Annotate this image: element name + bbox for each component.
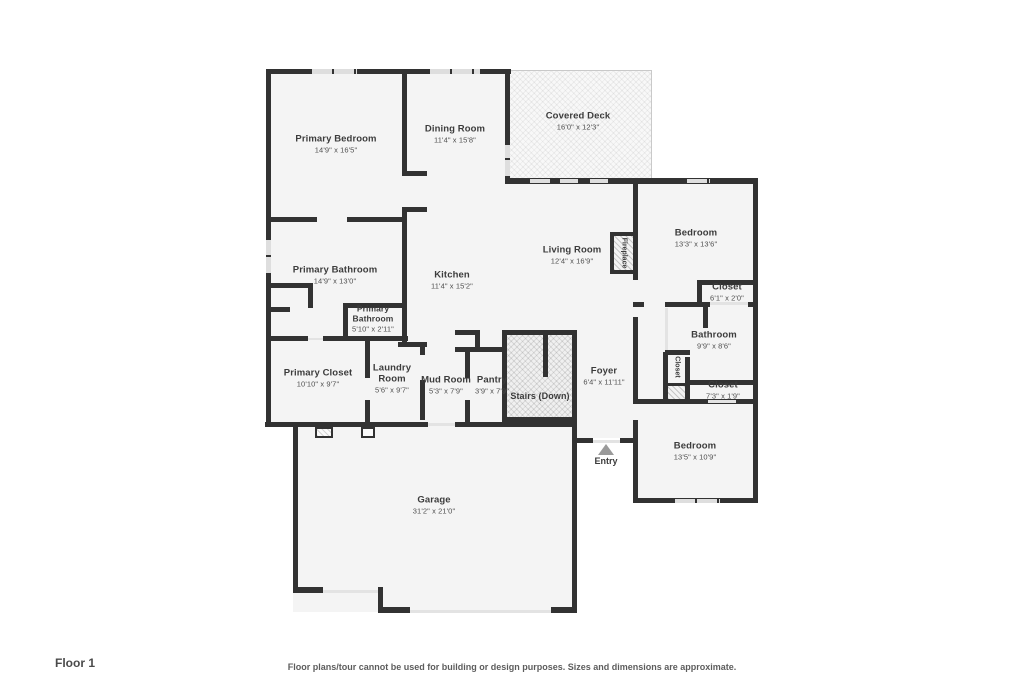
room-label-living-room: Living Room12'4" x 16'9" (543, 246, 602, 267)
wall-segment (365, 400, 370, 422)
window (588, 179, 608, 183)
wall-segment (665, 350, 690, 355)
wall-segment (402, 212, 407, 345)
wall-segment (577, 438, 593, 443)
room-label-covered-deck: Covered Deck16'0" x 12'3" (546, 112, 611, 133)
wall-segment (455, 347, 507, 352)
wall-segment (455, 422, 577, 427)
door-opening (410, 610, 551, 613)
wall-segment (398, 342, 427, 347)
wall-segment (685, 357, 690, 382)
window (428, 69, 480, 74)
garage-utility-box (361, 427, 375, 438)
room-fill (293, 427, 577, 612)
wall-segment (293, 587, 323, 593)
room-label-primary-closet: Primary Closet10'10" x 9'7" (284, 369, 352, 390)
window (310, 69, 357, 74)
garage-utility-box (315, 427, 333, 438)
stairs-area (507, 335, 572, 417)
wall-segment (266, 336, 308, 341)
room-label-closet-vertical: Closet (674, 356, 681, 377)
wall-segment (572, 427, 577, 613)
window (266, 240, 271, 275)
room-label-stairs: Stairs (Down) (510, 391, 569, 401)
door-opening (308, 338, 323, 340)
wall-segment (753, 178, 758, 503)
room-label-kitchen: Kitchen11'4" x 15'2" (431, 271, 473, 292)
wall-segment (543, 335, 548, 377)
disclaimer-text: Floor plans/tour cannot be used for buil… (0, 662, 1024, 672)
closet-hatch-box (665, 383, 688, 402)
room-label-bedroom-se: Bedroom13'5" x 10'9" (674, 442, 716, 463)
wall-segment (502, 330, 577, 335)
room-label-dining-room: Dining Room11'4" x 15'8" (425, 125, 485, 146)
wall-segment (633, 420, 638, 501)
wall-segment (378, 607, 410, 613)
room-label-primary-bathroom-wc: Primary Bathroom5'10" x 2'11" (347, 304, 399, 333)
door-opening (323, 590, 378, 593)
wall-segment (465, 400, 470, 422)
window (505, 145, 510, 178)
wall-segment (308, 288, 313, 308)
wall-segment (265, 422, 428, 427)
room-label-laundry-room: Laundry Room5'6" x 9'7" (366, 363, 418, 394)
wall-segment (347, 217, 403, 222)
wall-segment (402, 69, 407, 171)
wall-segment (266, 217, 317, 222)
door-opening (428, 423, 455, 426)
room-label-closet-e: Closet7'3" x 1'9" (706, 381, 740, 402)
window (673, 499, 720, 503)
window (685, 179, 710, 183)
room-label-entry: Entry (594, 456, 617, 466)
room-label-mud-room: Mud Room5'3" x 7'9" (421, 376, 471, 397)
window (558, 179, 578, 183)
room-label-bathroom: Bathroom9'9" x 8'6" (691, 331, 737, 352)
room-label-bedroom-ne: Bedroom13'3" x 13'6" (675, 229, 717, 250)
wall-segment (505, 69, 510, 145)
wall-segment (293, 422, 298, 593)
room-label-closet-ne: Closet6'1" x 2'0" (710, 283, 744, 304)
wall-segment (633, 302, 644, 307)
door-opening (593, 440, 620, 443)
door-opening (665, 308, 668, 350)
window (528, 179, 550, 183)
wall-segment (402, 171, 427, 176)
wall-segment (748, 302, 758, 307)
room-label-primary-bathroom: Primary Bathroom14'9" x 13'0" (293, 266, 377, 287)
wall-segment (620, 438, 635, 443)
wall-segment (703, 307, 708, 328)
room-label-primary-bedroom: Primary Bedroom14'9" x 16'5" (295, 135, 376, 156)
floor-plan-canvas: Primary Bedroom14'9" x 16'5" Dining Room… (0, 0, 1024, 682)
entry-arrow-icon (598, 444, 614, 455)
room-label-foyer: Foyer6'4" x 11'11" (583, 367, 624, 388)
wall-segment (268, 307, 290, 312)
wall-segment (633, 317, 638, 403)
room-label-garage: Garage31'2" x 21'0" (413, 496, 455, 517)
room-label-fireplace: Fireplace (621, 238, 628, 269)
room-label-pantry: Pantry3'9" x 7'9" (475, 376, 509, 397)
